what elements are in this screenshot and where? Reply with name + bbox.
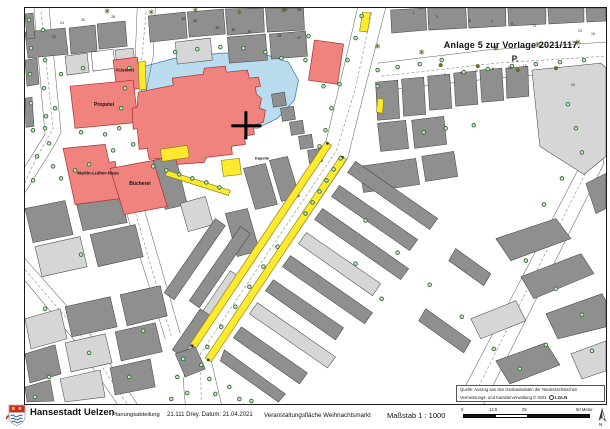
svg-text:32: 32 [193,19,197,23]
svg-text:6: 6 [476,69,478,73]
svg-text:9: 9 [511,22,513,26]
svg-text:38: 38 [247,30,251,34]
map-svg: 2224262830323436384547535513579111315246… [25,8,606,404]
svg-text:24: 24 [60,21,64,25]
scalebar-seg2 [496,415,528,417]
scalebar-label-25: 25 [522,407,527,412]
svg-text:4: 4 [460,71,462,75]
svg-text:55: 55 [297,8,301,12]
lgln-brand: LGLN [555,395,568,400]
lgln-gear-icon [549,395,554,400]
logo-gold-left [12,407,15,410]
scalebar-label-12-5: 12.5 [489,407,497,412]
svg-text:26: 26 [81,18,85,22]
svg-text:2: 2 [444,73,446,77]
svg-text:22: 22 [52,35,56,39]
svg-text:8: 8 [492,67,494,71]
map-frame: 2224262830323436384547535513579111315246… [24,7,607,405]
logo-gold-right [19,407,22,410]
svg-text:36: 36 [231,28,235,32]
svg-text:15: 15 [591,32,595,36]
footer-subject: Veranstaltungsfläche Weihnachtsmarkt [264,412,371,419]
annotation-p: P. [512,55,519,64]
footer-reference-date: 21.111 Drey. Datum: 21.04.2021 [167,412,253,418]
propstei-label: Propstei [94,102,114,108]
source-note-line2: Vermessungs- und Katasterverwaltung © 20… [460,394,601,402]
svg-text:11: 11 [533,24,537,28]
scalebar-label-50: 50 Meter [576,407,593,412]
svg-text:12: 12 [523,64,527,68]
svg-text:45: 45 [277,34,281,38]
svg-text:47: 47 [297,36,301,40]
svg-text:3: 3 [436,15,438,19]
footer-department: Planungsabteilung [112,412,160,418]
svg-text:53: 53 [283,8,287,12]
svg-text:7: 7 [491,20,493,24]
uelzen-coat-of-arms [5,403,27,427]
svg-text:5: 5 [469,19,471,23]
north-arrow-icon [595,408,609,423]
svg-text:20: 20 [571,83,575,87]
scalebar-seg1 [464,415,496,417]
scalebar [463,414,590,418]
footer-city: Hansestadt Uelzen [30,407,114,418]
kapelle-label: Kapelle [255,156,269,161]
martin-luther-haus-label: Martin-Luther-Haus [77,171,119,176]
northeast-red-building [308,40,343,84]
north-arrow-label: N [599,422,602,427]
buecherei-label: Bücherei [129,181,150,187]
plan-document-page: 2224262830323436384547535513579111315246… [0,0,610,429]
svg-text:28: 28 [111,15,115,19]
logo-shield-top [9,405,24,412]
svg-text:13: 13 [578,29,582,33]
svg-text:30: 30 [181,17,185,21]
annotation-title: Anlage 5 zur Vorlage 2021/117. [444,40,580,50]
svg-text:10: 10 [508,66,512,70]
svg-text:34: 34 [215,26,219,30]
svg-text:1: 1 [413,11,415,15]
source-note: Quelle: Auszug aus den Geobasisdaten der… [456,385,605,402]
scalebar-label-0: 0 [461,407,463,412]
kuesterei-label: Küsterei [116,68,134,73]
scalebar-seg3 [527,415,589,417]
footer-scale: Maßstab 1 : 1000 [387,411,445,420]
